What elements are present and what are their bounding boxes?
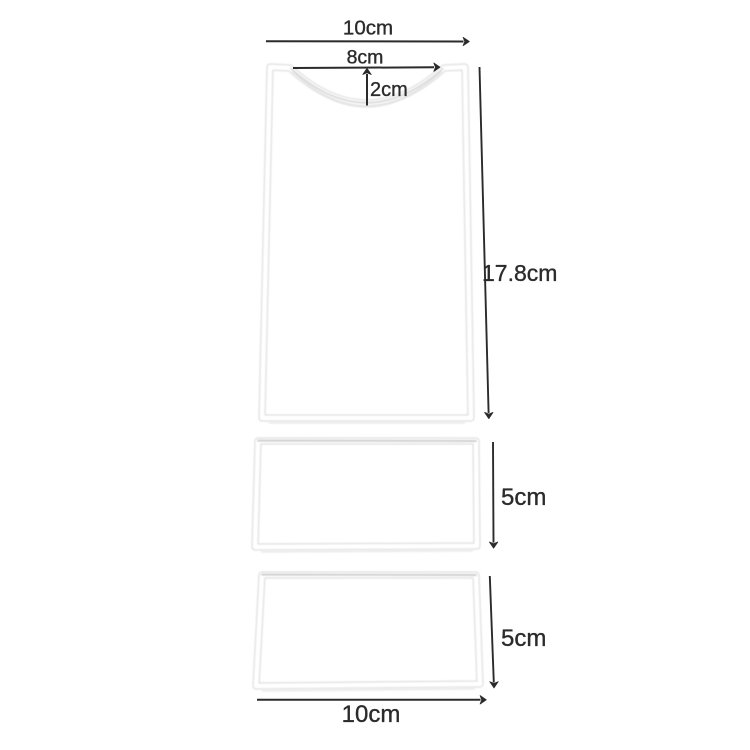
svg-text:10cm: 10cm	[342, 701, 401, 728]
svg-text:10cm: 10cm	[343, 17, 393, 40]
svg-text:5cm: 5cm	[501, 484, 546, 511]
svg-text:2cm: 2cm	[370, 79, 408, 101]
svg-text:5cm: 5cm	[501, 625, 546, 652]
svg-text:8cm: 8cm	[347, 47, 384, 69]
svg-text:17.8cm: 17.8cm	[482, 260, 557, 286]
